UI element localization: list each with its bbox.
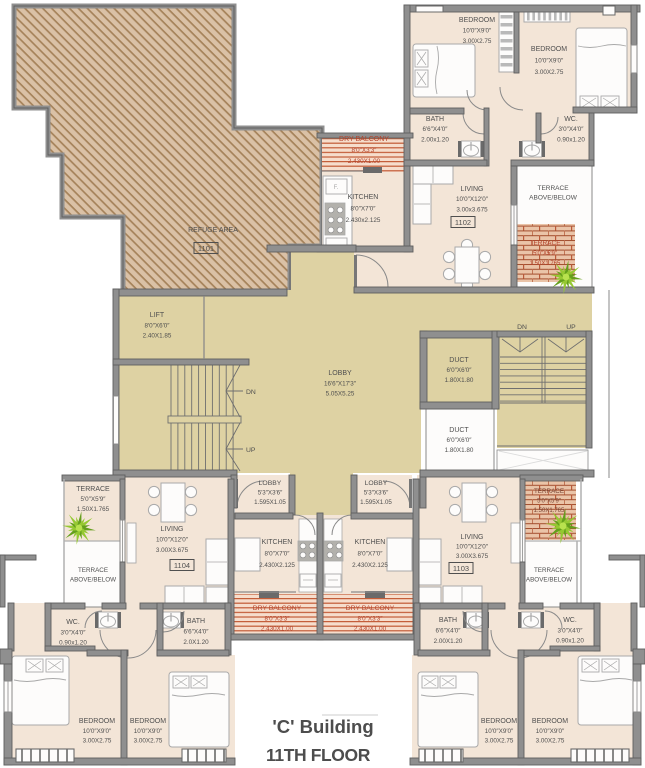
svg-text:LOBBY: LOBBY (259, 480, 282, 487)
svg-text:TERRACE: TERRACE (76, 486, 110, 493)
svg-text:6′6″X4′0″: 6′6″X4′0″ (435, 628, 461, 635)
svg-text:DRY BALCONY: DRY BALCONY (346, 605, 395, 612)
svg-text:5′0″X5′9″: 5′0″X5′9″ (537, 499, 562, 505)
svg-text:TERRACE: TERRACE (534, 488, 564, 495)
svg-text:2.40X1.85: 2.40X1.85 (143, 333, 172, 340)
svg-text:3.00X3.675: 3.00X3.675 (156, 547, 189, 554)
svg-text:LOBBY: LOBBY (365, 480, 388, 487)
svg-text:1.595X1.05: 1.595X1.05 (360, 499, 392, 506)
svg-text:2.430X1.00: 2.430X1.00 (348, 158, 381, 165)
svg-text:1102: 1102 (455, 218, 471, 227)
svg-text:0.90x1.20: 0.90x1.20 (556, 638, 584, 645)
svg-text:1.50X1.765: 1.50X1.765 (534, 508, 565, 514)
svg-text:KITCHEN: KITCHEN (348, 194, 379, 201)
svg-text:2.00X1.20: 2.00X1.20 (434, 638, 463, 645)
svg-text:LOBBY: LOBBY (328, 370, 352, 377)
svg-text:TERRACE: TERRACE (529, 240, 561, 247)
svg-text:5′3″X3′6″: 5′3″X3′6″ (258, 490, 283, 497)
svg-text:5′0″X5′9″: 5′0″X5′9″ (80, 496, 106, 503)
svg-text:UP: UP (566, 324, 576, 331)
svg-text:2.00x1.20: 2.00x1.20 (421, 136, 449, 143)
svg-text:BEDROOM: BEDROOM (531, 46, 567, 53)
svg-text:6′6″X4′0″: 6′6″X4′0″ (183, 629, 209, 636)
svg-text:6′6″X4′0″: 6′6″X4′0″ (422, 126, 448, 133)
svg-text:8′0″X7′0″: 8′0″X7′0″ (357, 551, 383, 558)
svg-text:ABOVE/BELOW: ABOVE/BELOW (526, 577, 572, 584)
svg-text:TERRACE: TERRACE (537, 185, 569, 192)
svg-text:WC.: WC. (66, 619, 80, 626)
svg-text:3.00X2.75: 3.00X2.75 (535, 69, 564, 76)
svg-text:DRY BALCONY: DRY BALCONY (253, 605, 302, 612)
svg-text:LIVING: LIVING (161, 526, 184, 533)
svg-text:5.05X5.25: 5.05X5.25 (326, 391, 355, 398)
svg-text:ABOVE/BELOW: ABOVE/BELOW (70, 577, 116, 584)
svg-text:BEDROOM: BEDROOM (481, 718, 517, 725)
svg-text:ABOVE/BELOW: ABOVE/BELOW (529, 195, 578, 202)
svg-text:8′0″X7′0″: 8′0″X7′0″ (264, 551, 290, 558)
svg-text:10′0″X9′0″: 10′0″X9′0″ (485, 728, 514, 735)
svg-text:10′0″X9′0″: 10′0″X9′0″ (134, 728, 163, 735)
svg-text:BEDROOM: BEDROOM (130, 718, 166, 725)
svg-text:1104: 1104 (174, 561, 190, 570)
svg-text:LIVING: LIVING (461, 186, 484, 193)
svg-text:TERRACE: TERRACE (78, 567, 108, 574)
svg-text:DN: DN (517, 324, 527, 331)
svg-text:8′0″X6′0″: 8′0″X6′0″ (144, 322, 170, 329)
svg-text:3′0″X4′0″: 3′0″X4′0″ (558, 126, 584, 133)
svg-text:10′0″X12′0″: 10′0″X12′0″ (156, 537, 189, 544)
svg-text:0.90x1.20: 0.90x1.20 (59, 640, 87, 647)
svg-text:6′0″X6′0″: 6′0″X6′0″ (446, 437, 472, 444)
svg-text:6′0″X6′0″: 6′0″X6′0″ (446, 367, 472, 374)
svg-text:3.00X2.75: 3.00X2.75 (463, 38, 492, 45)
svg-text:BATH: BATH (439, 617, 457, 624)
svg-text:BEDROOM: BEDROOM (459, 17, 495, 24)
svg-text:10′0″X9′0″: 10′0″X9′0″ (535, 58, 564, 65)
svg-text:F.: F. (334, 185, 339, 191)
svg-text:'C' Building: 'C' Building (272, 716, 373, 737)
svg-text:DUCT: DUCT (449, 427, 469, 434)
svg-text:LIVING: LIVING (461, 534, 484, 541)
svg-text:WC.: WC. (564, 116, 578, 123)
svg-text:10′0″X9′0″: 10′0″X9′0″ (83, 728, 112, 735)
svg-text:1.595X1.05: 1.595X1.05 (254, 499, 286, 506)
svg-text:KITCHEN: KITCHEN (262, 539, 293, 546)
svg-text:1.80X1.80: 1.80X1.80 (445, 447, 474, 454)
svg-text:BATH: BATH (187, 618, 205, 625)
svg-text:10′0″X12′0″: 10′0″X12′0″ (456, 196, 489, 203)
svg-text:2.430X1.00: 2.430X1.00 (261, 626, 294, 633)
svg-text:LIFT: LIFT (150, 312, 165, 319)
svg-text:UP: UP (246, 447, 256, 454)
svg-text:2.0X1.20: 2.0X1.20 (183, 639, 209, 646)
svg-text:1.50X1.765: 1.50X1.765 (77, 506, 110, 513)
svg-text:3.00X2.75: 3.00X2.75 (536, 738, 565, 745)
svg-text:10′0″X12′0″: 10′0″X12′0″ (456, 544, 489, 551)
svg-text:5′3″X3′6″: 5′3″X3′6″ (364, 490, 389, 497)
svg-text:1.80X1.80: 1.80X1.80 (445, 377, 474, 384)
svg-text:11TH FLOOR: 11TH FLOOR (266, 745, 371, 765)
svg-text:DRY BALCONY: DRY BALCONY (339, 136, 389, 143)
svg-text:3′0″X4′0″: 3′0″X4′0″ (60, 629, 86, 636)
svg-text:8′0″X3′3″: 8′0″X3′3″ (264, 615, 290, 622)
svg-text:KITCHEN: KITCHEN (355, 539, 386, 546)
svg-text:2.430X2.125: 2.430X2.125 (259, 562, 295, 569)
svg-text:DN: DN (246, 389, 256, 396)
svg-text:1103: 1103 (453, 564, 469, 573)
svg-text:5′0″X5′9″: 5′0″X5′9″ (533, 251, 558, 257)
svg-text:BEDROOM: BEDROOM (79, 718, 115, 725)
svg-text:3.00X2.75: 3.00X2.75 (83, 738, 112, 745)
svg-text:TERRACE: TERRACE (534, 567, 564, 574)
svg-text:2.430x2.125: 2.430x2.125 (346, 217, 381, 224)
svg-text:BATH: BATH (426, 116, 444, 123)
svg-text:10′0″X9′0″: 10′0″X9′0″ (463, 28, 492, 35)
svg-text:0.90x1.20: 0.90x1.20 (557, 136, 585, 143)
svg-text:DUCT: DUCT (449, 357, 469, 364)
svg-text:1101: 1101 (198, 244, 214, 253)
svg-text:8′0″X3′3″: 8′0″X3′3″ (357, 615, 383, 622)
svg-text:10′0″X9′0″: 10′0″X9′0″ (536, 728, 565, 735)
svg-text:2.430X1.00: 2.430X1.00 (354, 626, 387, 633)
svg-text:3.00x3.675: 3.00x3.675 (456, 206, 488, 213)
svg-text:WC.: WC. (563, 617, 577, 624)
svg-text:8′0″X3′3″: 8′0″X3′3″ (351, 147, 377, 154)
svg-text:BEDROOM: BEDROOM (532, 718, 568, 725)
svg-text:3′0″X4′0″: 3′0″X4′0″ (557, 627, 583, 634)
svg-text:3.00X2.75: 3.00X2.75 (485, 738, 514, 745)
svg-text:2.430X2.125: 2.430X2.125 (352, 562, 388, 569)
svg-text:8′0″X7′0″: 8′0″X7′0″ (350, 206, 376, 213)
svg-text:16′6″X17′3″: 16′6″X17′3″ (324, 380, 357, 387)
svg-text:REFUGE AREA: REFUGE AREA (188, 227, 238, 234)
svg-text:3.00X2.75: 3.00X2.75 (134, 738, 163, 745)
svg-text:3.00X3.675: 3.00X3.675 (456, 553, 489, 560)
